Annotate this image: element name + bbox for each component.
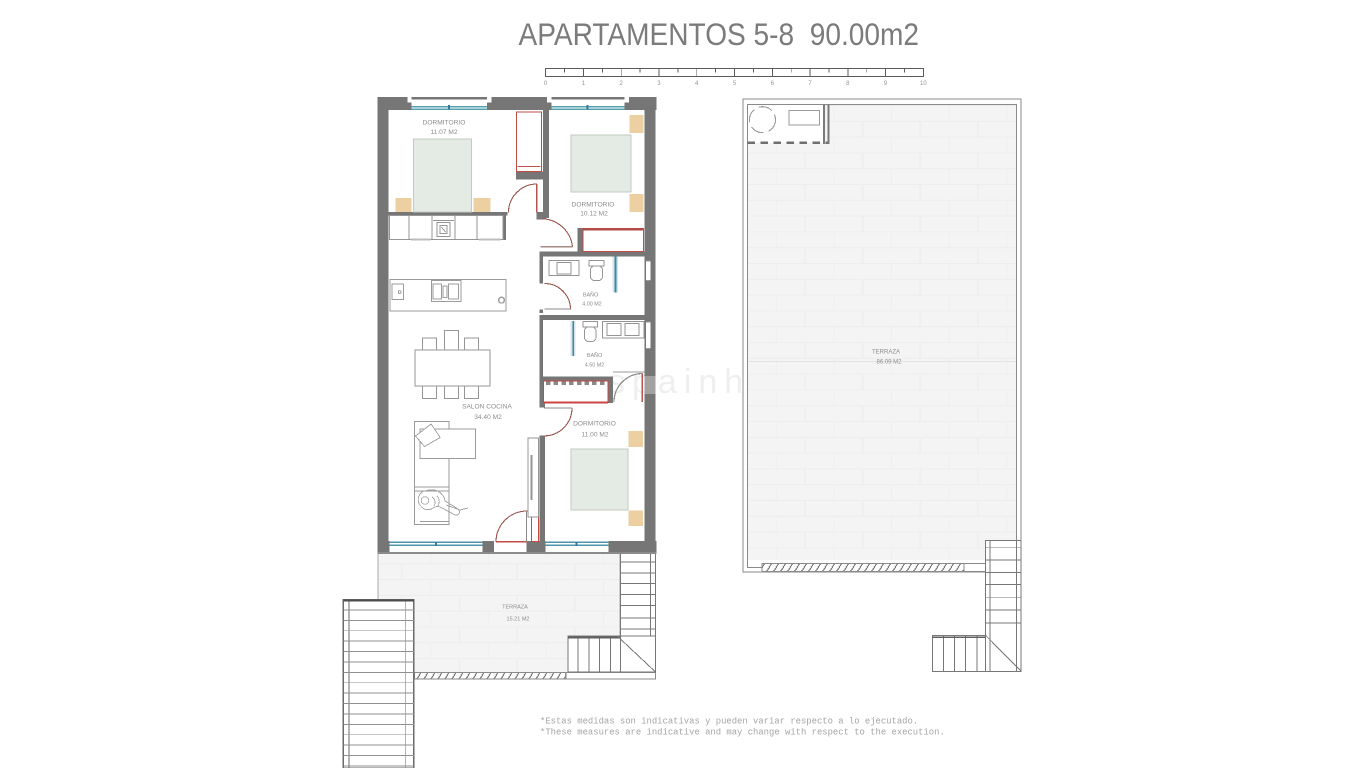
svg-text:0: 0: [544, 81, 548, 87]
svg-text:DORMITORIO: DORMITORIO: [572, 202, 615, 209]
svg-text:SALON COCINA: SALON COCINA: [462, 404, 512, 411]
svg-text:34.40 M2: 34.40 M2: [474, 414, 502, 421]
svg-text:*These measures are indicative: *These measures are indicative and may c…: [540, 728, 945, 738]
svg-text:BAÑO: BAÑO: [587, 352, 602, 359]
svg-text:4.50 M2: 4.50 M2: [585, 363, 604, 369]
svg-text:DORMITORIO: DORMITORIO: [423, 120, 466, 127]
svg-text:7: 7: [808, 81, 812, 87]
svg-text:6: 6: [771, 81, 775, 87]
svg-text:4: 4: [695, 81, 699, 87]
svg-text:TERRAZA: TERRAZA: [872, 350, 900, 356]
svg-text:8: 8: [846, 81, 850, 87]
svg-text:APARTAMENTOS 5-8 90.00m2: APARTAMENTOS 5-8 90.00m2: [519, 16, 920, 52]
svg-text:9: 9: [884, 81, 888, 87]
svg-text:DORMITORIO: DORMITORIO: [573, 421, 616, 428]
svg-text:1: 1: [582, 81, 586, 87]
svg-text:10: 10: [920, 81, 927, 87]
svg-text:TERRAZA: TERRAZA: [502, 605, 528, 611]
svg-text:11.07 M2: 11.07 M2: [430, 129, 457, 136]
svg-text:4.00 M2: 4.00 M2: [582, 301, 601, 307]
svg-text:2: 2: [620, 81, 624, 87]
svg-text:11.00 M2: 11.00 M2: [581, 432, 608, 439]
svg-text:*Estas medidas son indicativas: *Estas medidas son indicativas y pueden …: [540, 717, 918, 727]
svg-text:86.09 M2: 86.09 M2: [876, 360, 902, 366]
svg-text:5: 5: [733, 81, 737, 87]
svg-text:10.12 M2: 10.12 M2: [580, 211, 608, 218]
svg-text:3: 3: [657, 81, 661, 87]
svg-text:15.21 M2: 15.21 M2: [507, 617, 530, 623]
svg-text:BAÑO: BAÑO: [583, 292, 598, 299]
